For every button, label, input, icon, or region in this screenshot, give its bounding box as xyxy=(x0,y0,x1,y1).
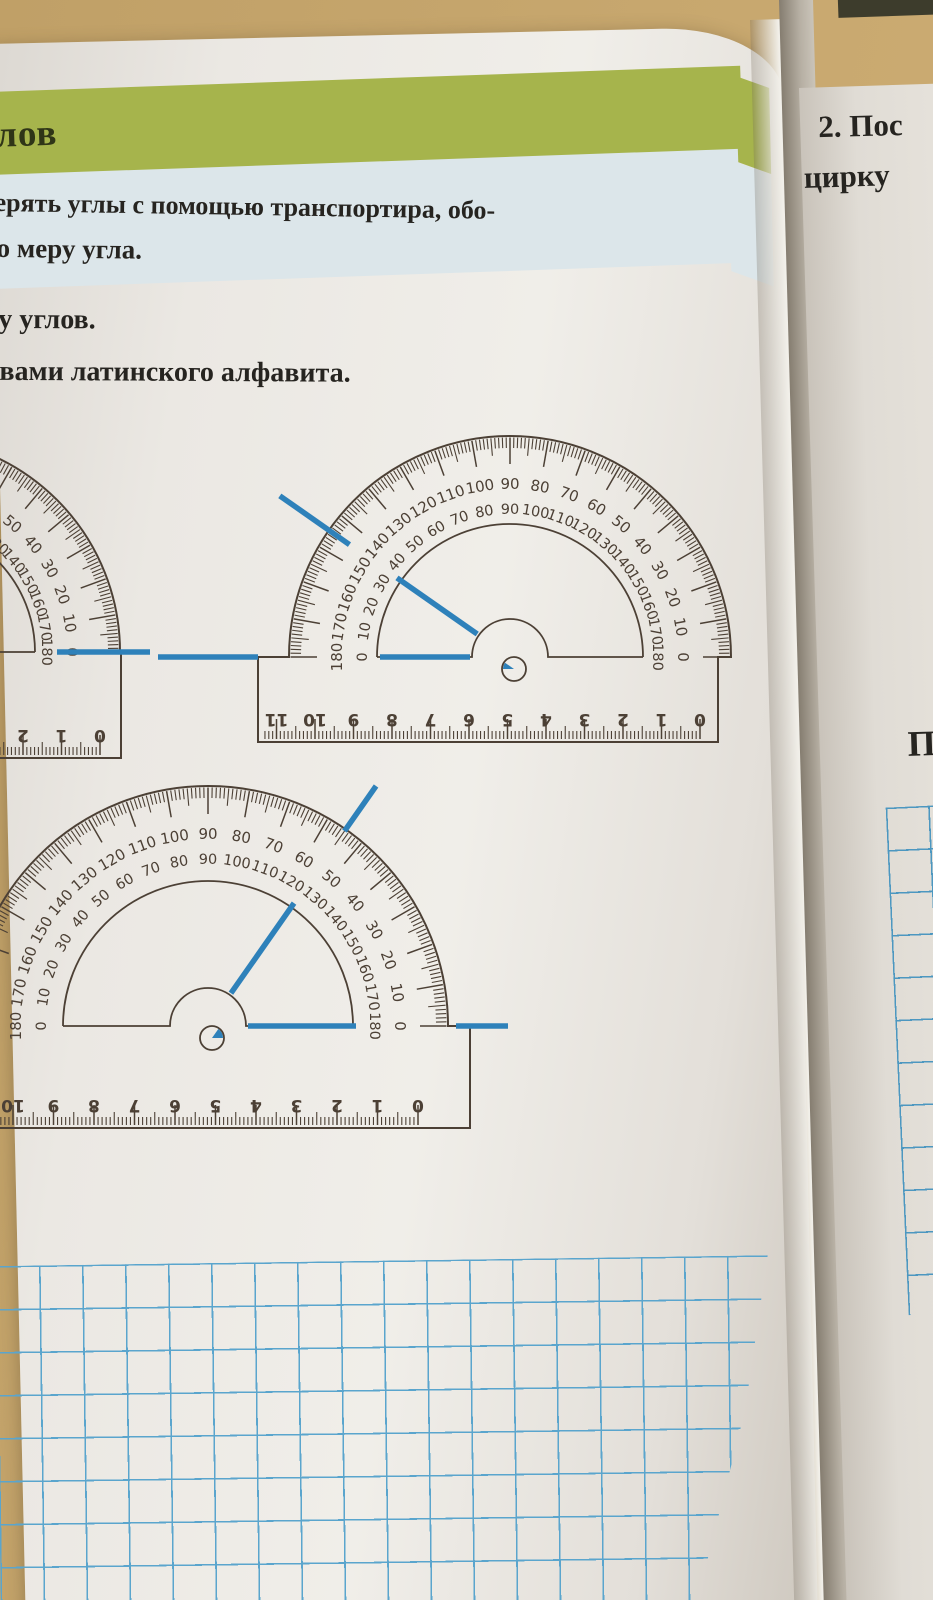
svg-text:70: 70 xyxy=(448,508,471,529)
svg-text:30: 30 xyxy=(53,931,76,955)
svg-text:40: 40 xyxy=(342,889,368,915)
svg-text:10: 10 xyxy=(1,1095,25,1115)
svg-text:100: 100 xyxy=(464,475,495,498)
right-page-figure-label: П xyxy=(907,722,933,765)
svg-text:100: 100 xyxy=(222,852,252,873)
svg-text:0: 0 xyxy=(412,1095,424,1115)
svg-text:11: 11 xyxy=(265,709,289,729)
squared-grid-right-page xyxy=(886,803,933,1315)
svg-text:60: 60 xyxy=(425,518,449,541)
svg-text:6: 6 xyxy=(463,709,475,729)
svg-text:20: 20 xyxy=(41,958,62,981)
svg-text:3: 3 xyxy=(291,1095,303,1115)
svg-text:170: 170 xyxy=(8,977,31,1008)
svg-text:100: 100 xyxy=(159,826,190,849)
svg-text:9: 9 xyxy=(348,709,360,729)
svg-text:3: 3 xyxy=(579,709,591,729)
svg-text:90: 90 xyxy=(501,502,519,518)
svg-text:20: 20 xyxy=(661,586,684,610)
scale-ticks xyxy=(291,438,730,658)
svg-text:4: 4 xyxy=(540,709,552,729)
svg-text:80: 80 xyxy=(474,503,495,522)
svg-text:110: 110 xyxy=(126,832,159,859)
svg-text:60: 60 xyxy=(0,495,1,520)
svg-text:2: 2 xyxy=(331,1095,343,1115)
svg-text:8: 8 xyxy=(88,1095,100,1115)
svg-text:20: 20 xyxy=(377,948,400,972)
svg-text:0: 0 xyxy=(674,652,692,662)
svg-text:70: 70 xyxy=(557,483,581,506)
svg-text:40: 40 xyxy=(20,532,46,558)
angle-rays xyxy=(158,496,477,657)
svg-text:10: 10 xyxy=(303,709,327,729)
svg-text:30: 30 xyxy=(362,917,387,943)
svg-text:60: 60 xyxy=(291,847,317,872)
svg-text:2: 2 xyxy=(617,709,629,729)
svg-text:0: 0 xyxy=(355,652,371,661)
svg-text:150: 150 xyxy=(338,927,366,959)
figures-svg: 0180101702016030150401405013060120012018… xyxy=(0,0,790,1600)
svg-text:8: 8 xyxy=(386,709,398,729)
svg-text:50: 50 xyxy=(403,532,427,556)
svg-text:1: 1 xyxy=(372,1095,384,1115)
svg-text:40: 40 xyxy=(385,550,409,574)
svg-text:160: 160 xyxy=(334,581,361,614)
svg-text:180: 180 xyxy=(366,1012,382,1040)
svg-text:120: 120 xyxy=(95,845,129,875)
right-page-task-number: 2. Пос xyxy=(818,107,903,145)
svg-text:10: 10 xyxy=(387,982,408,1004)
svg-text:160: 160 xyxy=(352,953,377,984)
svg-text:180: 180 xyxy=(7,1012,25,1041)
svg-text:110: 110 xyxy=(434,481,467,508)
svg-text:4: 4 xyxy=(250,1095,262,1115)
right-page-task-text: цирку xyxy=(803,157,890,196)
svg-text:1: 1 xyxy=(656,709,668,729)
svg-text:110: 110 xyxy=(249,858,280,883)
svg-text:5: 5 xyxy=(210,1095,222,1115)
svg-text:30: 30 xyxy=(371,572,394,596)
protractor-fragment: 0180101702016030150401405013060120012 xyxy=(0,437,150,758)
svg-text:0: 0 xyxy=(94,725,106,745)
svg-text:140: 140 xyxy=(45,886,77,920)
svg-text:80: 80 xyxy=(230,826,252,847)
protractor-bottom: 0180101702016030150401405013060120701108… xyxy=(0,786,508,1128)
svg-text:6: 6 xyxy=(169,1095,181,1115)
svg-text:7: 7 xyxy=(129,1095,141,1115)
ruler: 012345678910 xyxy=(0,1095,424,1125)
svg-text:60: 60 xyxy=(584,495,610,520)
svg-text:40: 40 xyxy=(69,907,93,931)
svg-text:50: 50 xyxy=(608,511,634,537)
svg-text:150: 150 xyxy=(27,913,57,947)
svg-text:7: 7 xyxy=(425,709,437,729)
svg-text:50: 50 xyxy=(89,887,113,911)
svg-text:90: 90 xyxy=(500,475,519,493)
background-object-edge xyxy=(838,0,933,18)
scale-ticks xyxy=(0,439,119,653)
svg-text:0: 0 xyxy=(391,1021,409,1031)
svg-text:0: 0 xyxy=(694,709,706,729)
svg-text:10: 10 xyxy=(670,616,691,638)
svg-text:130: 130 xyxy=(68,863,102,895)
svg-text:20: 20 xyxy=(361,595,382,618)
ruler: 01234567891011 xyxy=(265,709,706,739)
svg-text:80: 80 xyxy=(169,853,190,872)
svg-text:180: 180 xyxy=(649,643,665,671)
book-photo: лов ерять углы с помощью транспортира, о… xyxy=(0,0,933,1600)
svg-text:40: 40 xyxy=(629,533,655,559)
svg-text:180: 180 xyxy=(38,638,54,666)
svg-text:80: 80 xyxy=(529,476,551,497)
svg-text:70: 70 xyxy=(140,859,163,880)
svg-text:2: 2 xyxy=(17,725,29,745)
svg-text:10: 10 xyxy=(59,612,80,634)
svg-text:90: 90 xyxy=(198,825,217,843)
svg-text:10: 10 xyxy=(35,987,54,1008)
svg-text:30: 30 xyxy=(647,558,672,584)
svg-text:9: 9 xyxy=(48,1095,60,1115)
svg-text:50: 50 xyxy=(0,511,25,537)
svg-text:60: 60 xyxy=(113,871,137,894)
svg-text:180: 180 xyxy=(328,643,346,672)
svg-text:170: 170 xyxy=(328,611,351,642)
svg-text:100: 100 xyxy=(521,502,551,523)
svg-text:0: 0 xyxy=(34,1021,50,1030)
svg-text:90: 90 xyxy=(199,852,217,868)
svg-text:10: 10 xyxy=(356,621,375,642)
ruler: 012 xyxy=(0,725,106,755)
scale-labels: 0180101702016030150401405013060120 xyxy=(0,495,81,666)
svg-text:170: 170 xyxy=(361,982,382,1012)
svg-text:160: 160 xyxy=(14,944,41,977)
svg-text:70: 70 xyxy=(262,834,286,857)
protractor-top: 0180101702016030150401405013060120701108… xyxy=(158,436,731,742)
svg-text:30: 30 xyxy=(37,556,62,582)
svg-text:20: 20 xyxy=(50,583,73,607)
svg-text:5: 5 xyxy=(502,709,514,729)
svg-text:1: 1 xyxy=(56,725,68,745)
svg-text:50: 50 xyxy=(318,866,344,892)
